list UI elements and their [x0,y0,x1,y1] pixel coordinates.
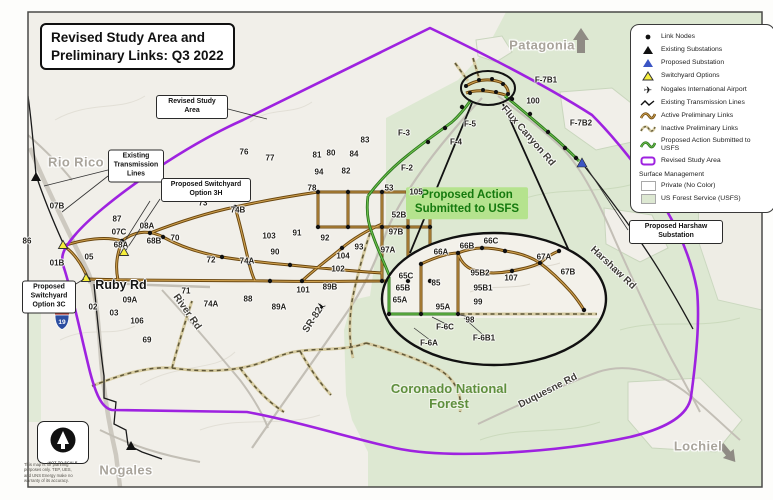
link-label: 93 [355,243,364,252]
link-label: 68B [147,237,162,246]
place-label: Coronado National Forest [374,382,524,412]
link-label: 100 [526,97,539,106]
link-label: 97B [389,228,404,237]
callout-existing-transmission: Existing Transmission Lines [108,150,164,183]
link-label: 103 [262,232,275,241]
legend-item-existing-substations: Existing Substations [639,45,767,55]
legend-label: Link Nodes [661,33,695,41]
link-label: 102 [331,265,344,274]
link-label: 77 [266,154,275,163]
link-label: 01B [50,259,65,268]
link-label: F-6A [420,339,438,348]
legend-item-link-nodes: Link Nodes [639,32,767,42]
link-label: 89B [323,283,338,292]
link-label: 66A [434,248,449,257]
link-label: 70 [171,234,180,243]
link-label: 74A [240,257,255,266]
link-label: F-7B2 [570,119,592,128]
link-label: 98 [466,316,475,325]
proposed-action-label: Proposed Action Submitted to USFS [406,187,528,219]
legend-item-active-links: Active Preliminary Links [639,111,767,121]
link-label: 101 [296,286,309,295]
legend-item-airport: ✈ Nogales International Airport [639,84,767,95]
svg-text:19: 19 [58,319,66,326]
link-label: 67B [561,268,576,277]
usfs-swatch-icon [639,194,657,204]
link-label: 03 [110,309,119,318]
link-label: 87 [113,215,122,224]
link-label: 99 [474,298,483,307]
link-label: 07C [112,228,127,237]
legend-label: Active Preliminary Links [661,112,733,120]
link-label: 107 [504,274,517,283]
link-label: 66C [484,237,499,246]
legend-item-usfs: US Forest Service (USFS) [639,194,767,204]
link-label: 86 [23,237,32,246]
link-label: 85 [432,279,441,288]
existing-substation-icon [639,45,657,55]
place-label: Nogales [99,463,152,478]
link-label: 83 [361,136,370,145]
legend-item-inactive-links: Inactive Preliminary Links [639,124,767,134]
legend-label: Revised Study Area [661,157,721,165]
link-label: 95B2 [470,269,489,278]
legend-label: Proposed Substation [661,59,724,67]
place-label: Lochiel [674,439,722,454]
link-label: F-6C [436,323,454,332]
callout-switchyard-3c: Proposed Switchyard Option 3C [22,281,76,314]
link-label: 67A [537,253,552,262]
map-title-line2: Preliminary Links: Q3 2022 [51,47,224,65]
map-screenshot: ✈ 19 Revised Study Area and Preliminary … [0,0,773,500]
proposed-action-icon [639,140,657,150]
callout-harshaw-substation: Proposed Harshaw Substation [629,220,723,244]
link-label: 66B [460,242,475,251]
link-label: 76 [240,148,249,157]
link-label: 05 [85,253,94,262]
legend-item-private: Private (No Color) [639,181,767,191]
link-label: 92 [321,234,330,243]
link-label: 65B [396,284,411,293]
link-label: 89A [272,303,287,312]
legend-item-revised-study-area: Revised Study Area [639,156,767,166]
svg-text:✈: ✈ [644,86,652,96]
legend-item-proposed-substation: Proposed Substation [639,58,767,68]
link-label: 02 [89,303,98,312]
link-label: 09A [123,296,138,305]
link-label: F-6B1 [473,334,495,343]
airport-icon: ✈ [639,84,657,95]
link-label: 53 [385,184,394,193]
legend-panel: Link Nodes Existing Substations Proposed… [630,24,773,213]
north-arrow-icon [48,425,78,455]
link-label: 91 [293,229,302,238]
link-label: 74B [231,206,246,215]
callout-switchyard-3h: Proposed Switchyard Option 3H [161,178,251,202]
link-label: 97A [381,246,396,255]
map-title: Revised Study Area and Preliminary Links… [40,23,235,70]
link-label: 88 [244,295,253,304]
link-label: 95B1 [473,284,492,293]
place-label: Rio Rico [48,155,104,170]
link-label: F-4 [450,138,462,147]
link-label: F-5 [464,120,476,129]
legend-item-switchyard-options: Switchyard Options [639,71,767,81]
legend-surface-header: Surface Management [639,171,767,178]
proposed-substation-icon [639,58,657,68]
legend-label: Inactive Preliminary Links [661,125,738,133]
active-link-icon [639,111,657,121]
link-label: 81 [313,151,322,160]
legend-label: Existing Substations [661,46,722,54]
legend-label: Switchyard Options [661,72,720,80]
legend-label: Proposed Action Submitted to USFS [661,137,767,153]
switchyard-option-icon [639,71,657,81]
link-node-icon [639,32,657,42]
link-label: F-7B1 [535,76,557,85]
link-label: 71 [182,287,191,296]
link-label: 80 [327,149,336,158]
link-label: 84 [350,150,359,159]
north-arrow-box: NOT TO SCALE [37,421,89,464]
legend-label: US Forest Service (USFS) [661,195,741,203]
link-label: 68A [114,241,129,250]
legend-label: Private (No Color) [661,182,715,190]
link-label: 82 [342,167,351,176]
legend-label: Nogales International Airport [661,86,747,94]
link-label: 52B [392,211,407,220]
legend-item-proposed-action: Proposed Action Submitted to USFS [639,137,767,153]
study-area-icon [639,156,657,166]
legend-label: Existing Transmission Lines [661,99,745,107]
legend-item-existing-transmission: Existing Transmission Lines [639,98,767,108]
road-label: Ruby Rd [95,278,146,292]
link-label: 95A [436,303,451,312]
link-label: 90 [271,248,280,257]
link-label: 08A [140,222,155,231]
link-label: 105 [409,188,422,197]
link-label: F-2 [401,164,413,173]
link-label: 65A [393,296,408,305]
inactive-link-icon [639,124,657,134]
place-label: Patagonia [509,38,575,53]
link-label: F-3 [398,129,410,138]
private-swatch-icon [639,181,657,191]
link-label: 94 [315,168,324,177]
link-label: 65C [399,272,414,281]
existing-transmission-icon [639,98,657,108]
map-title-line1: Revised Study Area and [51,29,224,47]
link-label: 69 [143,336,152,345]
map-disclaimer: This map is for planning purposes only. … [24,462,78,483]
link-label: 78 [308,184,317,193]
link-label: 106 [130,317,143,326]
callout-revised-study-area: Revised Study Area [156,95,228,119]
link-label: 74A [204,300,219,309]
link-label: 07B [50,202,65,211]
link-label: 104 [336,252,349,261]
link-label: 72 [207,256,216,265]
